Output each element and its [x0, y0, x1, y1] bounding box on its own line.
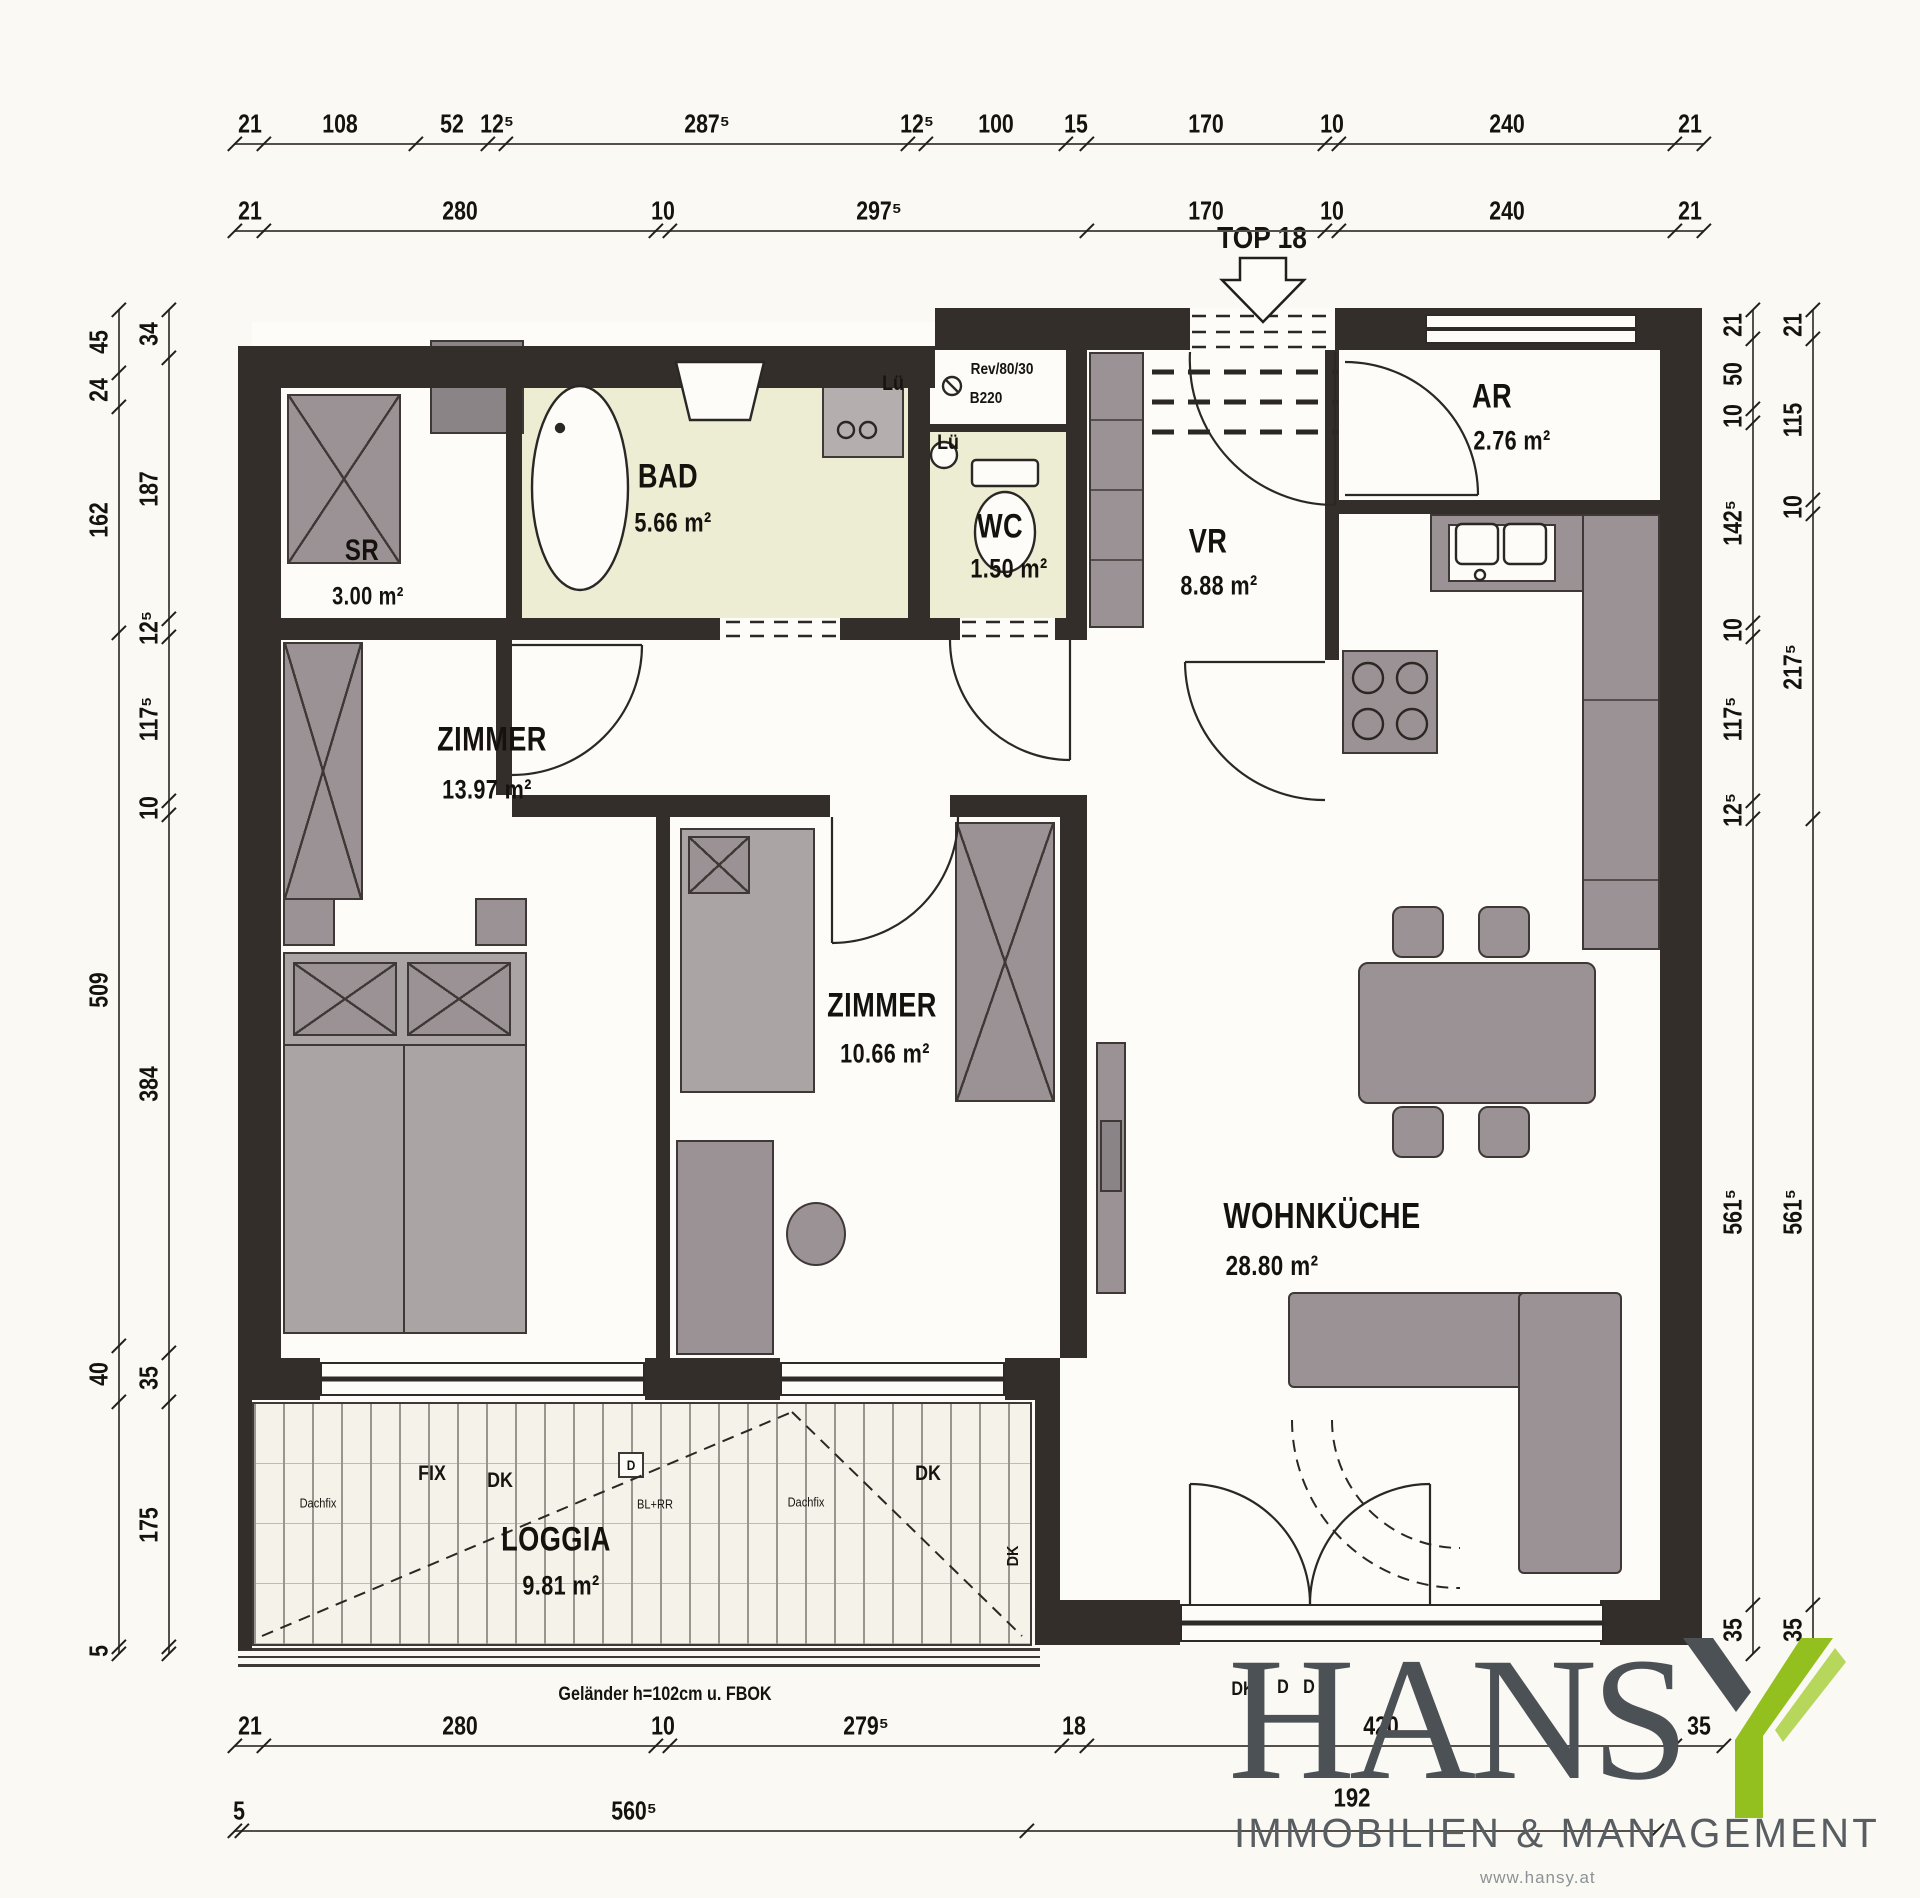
annotation-label: B220 — [970, 390, 1003, 408]
top18-label: TOP 18 — [1217, 220, 1307, 256]
room-area-label: 2.76 m² — [1473, 426, 1550, 457]
logo-text-hans: HANS — [1228, 1632, 1683, 1808]
room-label: LOGGIA — [501, 1521, 611, 1560]
dimension-label: 170 — [1188, 109, 1224, 140]
dimension-label: 100 — [978, 109, 1014, 140]
logo-wordmark: HANS — [1228, 1632, 1847, 1820]
dimension-label: 170 — [1188, 196, 1224, 227]
dimension-label: 34 — [134, 322, 165, 346]
dimension-label: 21 — [1778, 313, 1809, 337]
dimension-label: 10 — [1718, 618, 1749, 642]
room-area-label: 3.00 m² — [332, 583, 404, 612]
dimension-label: 162 — [84, 502, 115, 538]
room-label: SR — [345, 534, 379, 568]
dimension-label: 117⁵ — [1718, 697, 1749, 741]
dimension-label: 21 — [238, 196, 262, 227]
railing-note: Geländer h=102cm u. FBOK — [558, 1684, 771, 1706]
dimension-label: 509 — [84, 972, 115, 1008]
annotation-label: DK — [487, 1469, 513, 1493]
dimension-label: 10 — [652, 1711, 676, 1742]
dimension-label: 21 — [1678, 196, 1702, 227]
dimension-label: 287⁵ — [684, 109, 730, 140]
dimension-label: 279⁵ — [843, 1711, 889, 1742]
dimension-label: 108 — [322, 109, 358, 140]
annotation-label: D — [627, 1457, 636, 1473]
dimension-label: 384 — [134, 1066, 165, 1102]
dimension-label: 12⁵ — [1718, 793, 1749, 827]
dimension-label: 45 — [84, 330, 115, 354]
dimension-label: 50 — [1718, 363, 1749, 387]
annotation-label: DK — [1005, 1546, 1023, 1567]
dimension-label: 240 — [1489, 196, 1525, 227]
dimension-label: 240 — [1489, 109, 1525, 140]
dimension-label: 560⁵ — [612, 1796, 658, 1827]
dimension-label: 561⁵ — [1718, 1189, 1749, 1235]
room-label: ZIMMER — [827, 987, 937, 1026]
dimension-line — [168, 310, 170, 1654]
dimension-line — [1752, 310, 1754, 1654]
dimension-label: 21 — [238, 1711, 262, 1742]
dimension-label: 12⁵ — [900, 109, 934, 140]
dimension-label: 217⁵ — [1778, 644, 1809, 690]
dimension-label: 297⁵ — [856, 196, 902, 227]
dimension-label: 10 — [1320, 109, 1344, 140]
dimension-label: 175 — [134, 1507, 165, 1543]
room-label: WC — [977, 508, 1023, 547]
logo-y-icon — [1683, 1638, 1847, 1820]
dimension-label: 52 — [440, 109, 464, 140]
annotation-label: Lü — [882, 372, 904, 396]
room-area-label: 13.97 m² — [442, 775, 532, 806]
dimension-line — [235, 143, 1704, 145]
dimension-label: 117⁵ — [134, 697, 165, 741]
dimension-label: 142⁵ — [1718, 500, 1749, 546]
dimension-label: 5 — [84, 1645, 115, 1657]
room-label: WOHNKÜCHE — [1223, 1195, 1420, 1237]
plan-linework — [0, 0, 1920, 1898]
dimension-label: 10 — [1778, 496, 1809, 520]
annotation-label: Dachfix — [788, 1495, 825, 1510]
room-label: BAD — [638, 458, 698, 497]
annotation-label: BL+RR — [637, 1497, 673, 1512]
annotation-label: FIX — [418, 1462, 446, 1486]
dimension-label: 12⁵ — [134, 611, 165, 645]
top18-arrow — [1222, 258, 1304, 322]
dimension-label: 115 — [1778, 403, 1809, 437]
floorplan-page: TOP 18 Geländer h=102cm u. FBOK SR3.00 m… — [0, 0, 1920, 1898]
annotation-label: Rev/80/30 — [971, 361, 1034, 379]
room-label: ZIMMER — [437, 721, 547, 760]
annotation-label: Dachfix — [300, 1496, 337, 1511]
dimension-label: 280 — [443, 196, 479, 227]
room-area-label: 28.80 m² — [1226, 1250, 1319, 1282]
room-area-label: 8.88 m² — [1180, 571, 1257, 602]
annotation-label: DK — [915, 1462, 941, 1486]
room-label: VR — [1189, 523, 1228, 562]
annotation-label: Lü — [937, 431, 959, 455]
dimension-label: 21 — [1678, 109, 1702, 140]
room-area-label: 1.50 m² — [970, 554, 1047, 585]
room-area-label: 9.81 m² — [522, 1571, 599, 1602]
room-area-label: 10.66 m² — [840, 1039, 930, 1070]
dimension-label: 187 — [134, 471, 165, 507]
dimension-label: 21 — [238, 109, 262, 140]
dimension-label: 40 — [84, 1362, 115, 1386]
dimension-label: 12⁵ — [480, 109, 514, 140]
logo-subtitle: IMMOBILIEN & MANAGEMENT — [1234, 1810, 1880, 1857]
dimension-label: 15 — [1065, 109, 1089, 140]
dimension-label: 10 — [1718, 405, 1749, 429]
logo-website: www.hansy.at — [1480, 1868, 1596, 1888]
dimension-label: 10 — [1320, 196, 1344, 227]
dimension-label: 35 — [134, 1366, 165, 1390]
dimension-label: 280 — [443, 1711, 479, 1742]
dimension-label: 18 — [1062, 1711, 1086, 1742]
dimension-line — [118, 310, 120, 1654]
dimension-label: 10 — [652, 196, 676, 227]
dimension-label: 5 — [233, 1796, 245, 1827]
room-area-label: 5.66 m² — [634, 508, 711, 539]
room-label: AR — [1472, 378, 1512, 417]
dimension-label: 10 — [134, 797, 165, 821]
dimension-label: 561⁵ — [1778, 1189, 1809, 1235]
dimension-label: 24 — [84, 378, 115, 402]
hansy-logo: HANS IMMOBILIEN & MANAGEMENT www.hansy.a… — [1198, 1632, 1898, 1892]
dimension-label: 21 — [1718, 313, 1749, 337]
dimension-line — [235, 230, 1704, 232]
